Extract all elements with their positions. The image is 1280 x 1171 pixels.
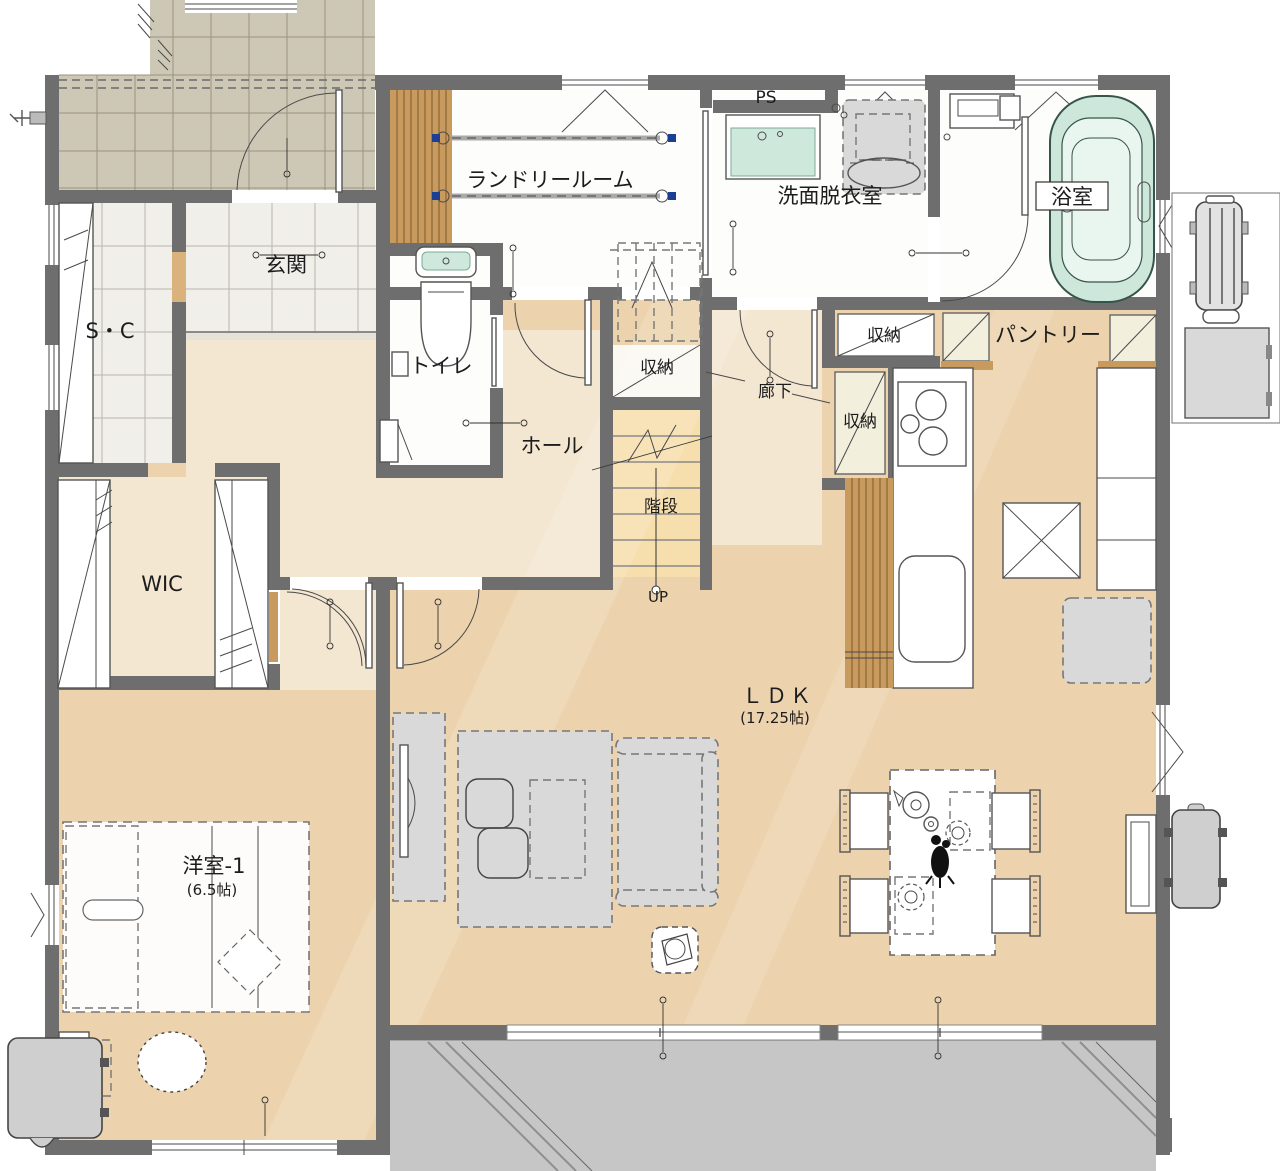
window-sc-left-2 [45,345,59,410]
label-stairs-up: UP [648,588,668,606]
label-shoe-closet: S・C [86,319,135,343]
wall-cabinet [1126,815,1156,913]
label-wic: WIC [141,572,183,596]
ac-outdoor-unit-bottom-left [8,1038,109,1147]
label-bedroom1: 洋室-1 [183,854,246,878]
window-ldk-right [1152,705,1183,795]
rug-and-tables [458,731,612,927]
label-bathroom: 浴室 [1051,185,1093,209]
window-ldk-terrace-2 [838,1025,1042,1040]
vanity [726,115,820,179]
tv-board [393,713,445,901]
label-laundry: ランドリールーム [466,168,633,192]
floor-hatch [1003,503,1080,578]
label-entrance: 玄関 [265,253,307,277]
sofa [616,738,718,906]
label-storage-upper: 収納 [867,326,901,346]
outdoor-faucet [10,110,46,126]
label-bedroom1-size: (6.5帖) [187,881,238,899]
ac-outdoor-unit-right [1164,804,1227,908]
label-corridor: 廊下 [758,382,792,402]
label-storage-stairs: 収納 [640,358,674,378]
side-table-plant [652,927,698,973]
label-ldk: ＬＤＫ [742,684,814,708]
label-washroom: 洗面脱衣室 [778,184,883,208]
label-stairs: 階段 [644,497,678,517]
window-ldk-terrace-1 [507,1025,820,1040]
toilet-door [490,315,503,388]
porch-tiles [59,0,375,190]
tall-cabinet [1097,368,1156,590]
refrigerator [1063,598,1151,683]
window-bedroom-bottom [152,1140,337,1155]
window-bedroom-left [31,885,59,945]
window-bath-right [1156,200,1172,253]
washing-machine [843,100,925,194]
label-toilet: トイレ [410,354,473,378]
sc-opening [172,252,186,302]
label-ps: PS [755,88,776,108]
floor-plan-drawing: ランドリールーム PS 洗面脱衣室 浴室 玄関 S・C トイレ 収納 収納 廊下… [0,0,1280,1171]
label-hall: ホール [521,434,584,458]
window-sc-left-1 [45,205,59,265]
label-pantry: パントリー [995,323,1101,347]
label-storage-corridor: 収納 [843,412,877,432]
bed [63,822,309,1012]
water-heater-unit [1172,193,1280,423]
label-ldk-size: (17.25帖) [740,709,810,727]
floor-plan-page: ランドリールーム PS 洗面脱衣室 浴室 玄関 S・C トイレ 収納 収納 廊下… [0,0,1280,1171]
terrace [390,1040,1156,1171]
